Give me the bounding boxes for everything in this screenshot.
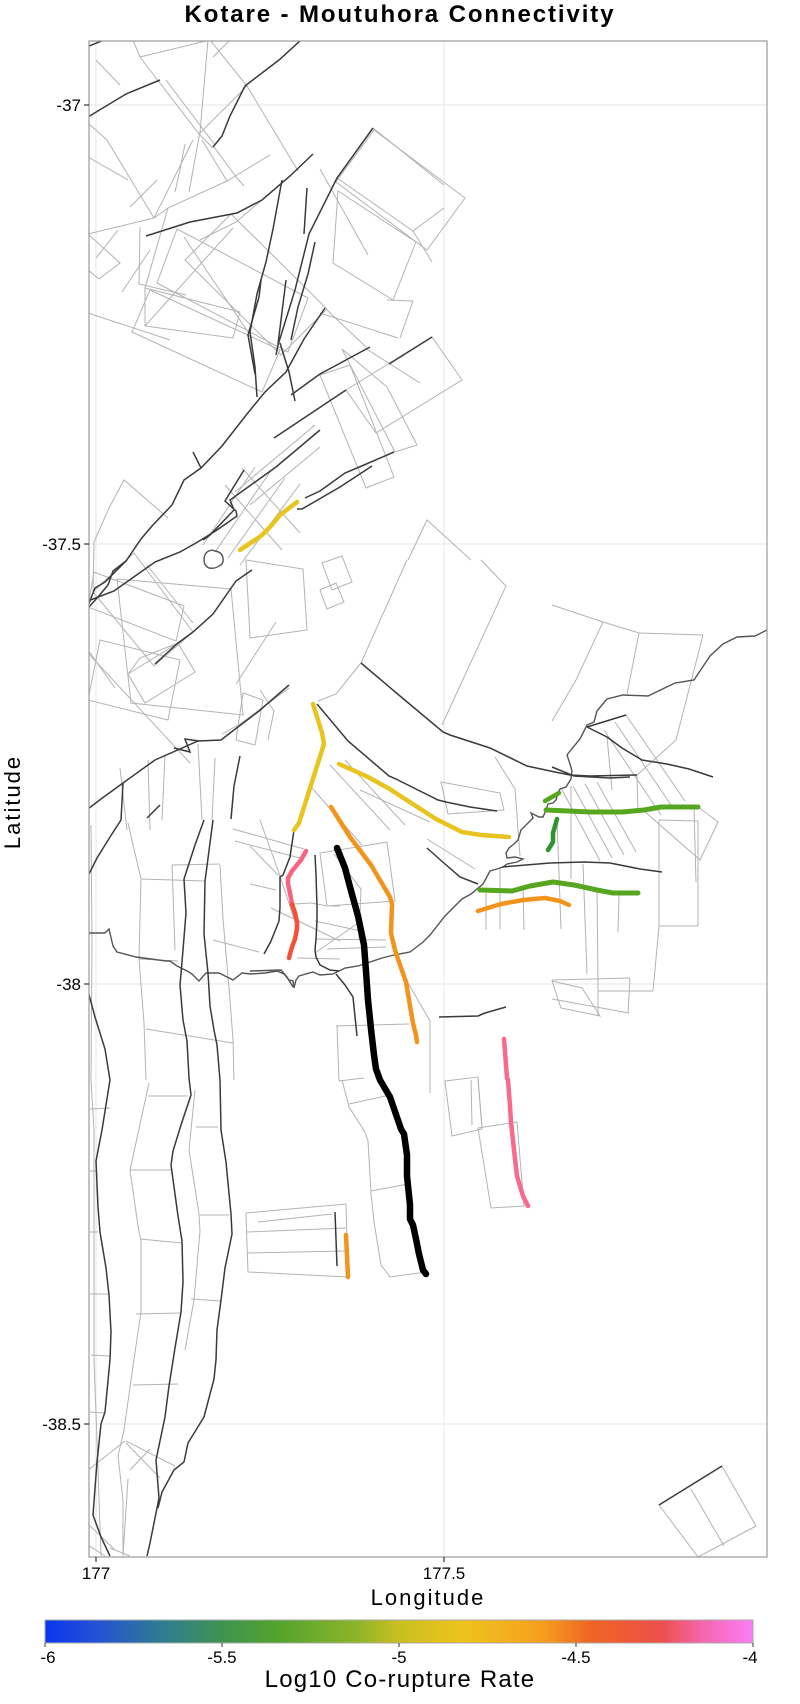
svg-text:177.5: 177.5 (423, 1564, 466, 1583)
svg-text:-37: -37 (56, 96, 81, 115)
svg-text:-4.5: -4.5 (561, 1648, 590, 1667)
svg-text:-5.5: -5.5 (207, 1648, 236, 1667)
svg-text:Latitude: Latitude (0, 755, 25, 849)
svg-text:-5: -5 (391, 1648, 406, 1667)
svg-text:-4: -4 (742, 1648, 757, 1667)
svg-text:Kotare - Moutuhora Connectivit: Kotare - Moutuhora Connectivity (185, 1, 616, 28)
svg-text:-37.5: -37.5 (42, 535, 81, 554)
svg-text:Log10 Co-rupture Rate: Log10 Co-rupture Rate (265, 1666, 536, 1693)
svg-text:-6: -6 (40, 1648, 55, 1667)
svg-text:-38: -38 (56, 975, 81, 994)
svg-text:Longitude: Longitude (371, 1585, 486, 1610)
svg-text:177: 177 (82, 1564, 110, 1583)
svg-text:-38.5: -38.5 (42, 1415, 81, 1434)
